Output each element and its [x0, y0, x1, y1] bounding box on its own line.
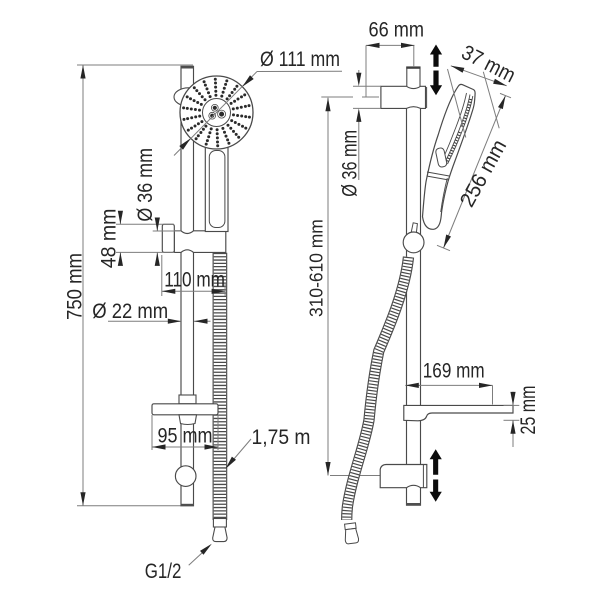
- svg-text:Ø 22 mm: Ø 22 mm: [92, 300, 168, 323]
- svg-text:G1/2: G1/2: [145, 560, 182, 583]
- svg-text:Ø 111 mm: Ø 111 mm: [260, 48, 340, 71]
- svg-text:66 mm: 66 mm: [369, 19, 425, 42]
- svg-text:169 mm: 169 mm: [423, 360, 485, 383]
- svg-text:Ø 36 mm: Ø 36 mm: [339, 130, 362, 197]
- svg-text:310-610 mm: 310-610 mm: [307, 219, 327, 317]
- svg-text:110 mm: 110 mm: [164, 268, 225, 291]
- svg-text:25 mm: 25 mm: [517, 386, 540, 435]
- svg-text:750 mm: 750 mm: [64, 253, 87, 320]
- svg-text:95 mm: 95 mm: [158, 424, 213, 447]
- svg-text:1,75 m: 1,75 m: [252, 426, 311, 449]
- svg-text:48 mm: 48 mm: [97, 209, 120, 269]
- svg-text:Ø 36 mm: Ø 36 mm: [134, 148, 157, 222]
